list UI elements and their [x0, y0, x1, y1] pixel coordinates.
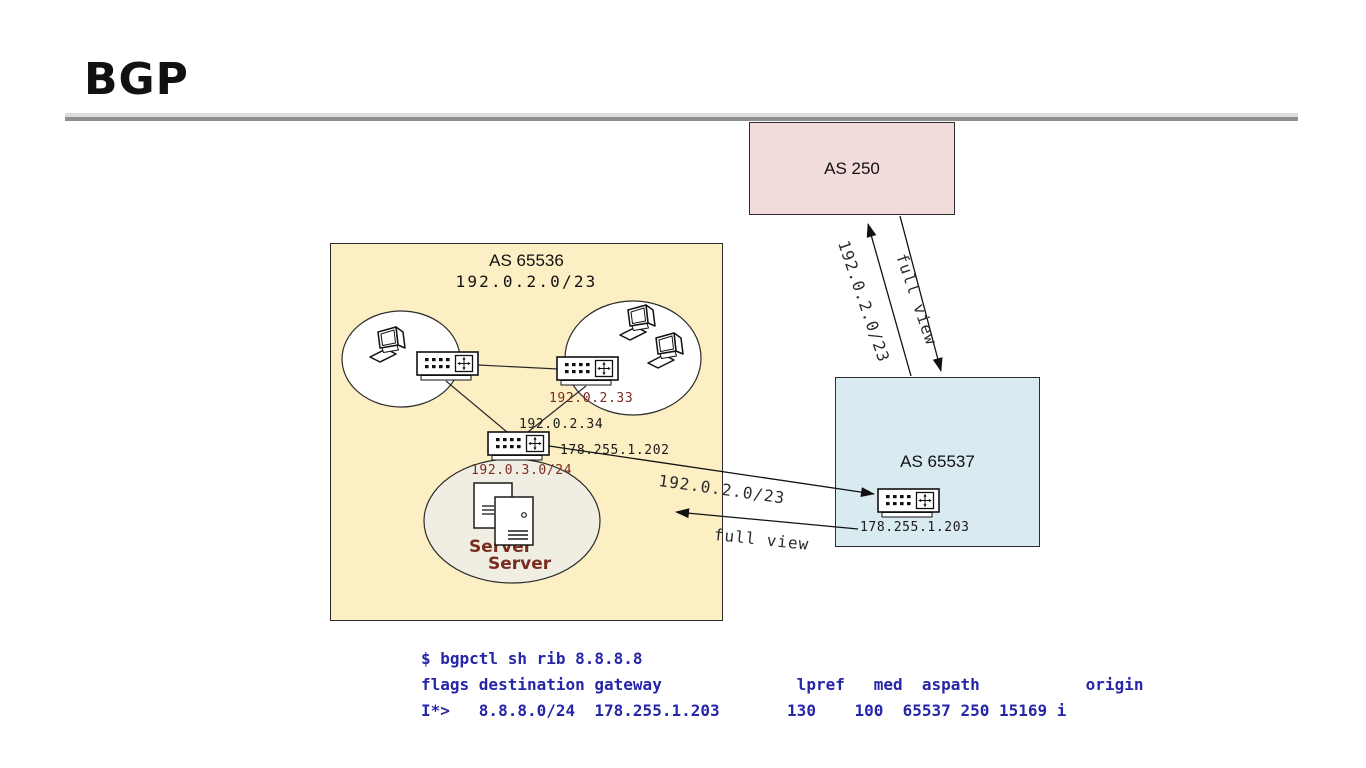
terminal-rib-entry-line: I*> 8.8.8.0/24 178.255.1.203 130 100 655… [421, 698, 1143, 724]
page-title: BGP [84, 54, 189, 105]
as65536-box: AS 65536 192.0.2.0/23 [330, 243, 723, 621]
up-announce-label: 192.0.2.0/23 [834, 238, 894, 365]
router-b-ip-label: 192.0.2.33 [549, 391, 633, 406]
as250-label: AS 250 [824, 159, 880, 179]
terminal-command-line: $ bgpctl sh rib 8.8.8.8 [421, 646, 1143, 672]
server-lan-prefix-label: 192.0.3.0/24 [471, 463, 572, 478]
as65537-label: AS 65537 [836, 452, 1039, 472]
as250-box: AS 250 [749, 122, 955, 215]
as65536-label: AS 65536 [331, 251, 722, 271]
router-core-ip-label: 192.0.2.34 [519, 417, 603, 432]
title-rule-dark [65, 117, 1298, 121]
up-fullview-label: full view [892, 251, 941, 348]
terminal-output: $ bgpctl sh rib 8.8.8.8 flags destinatio… [421, 646, 1143, 724]
slide: BGP AS 250 AS 65536 192.0.2.0/23 AS 6553… [0, 0, 1366, 768]
side-fullview-label: full view [713, 525, 810, 554]
terminal-header-line: flags destination gateway lpref med aspa… [421, 672, 1143, 698]
router-core-wan-ip-label: 178.255.1.202 [560, 443, 670, 458]
as65537-router-ip-label: 178.255.1.203 [860, 520, 970, 535]
as65536-prefix-label: 192.0.2.0/23 [331, 272, 722, 291]
